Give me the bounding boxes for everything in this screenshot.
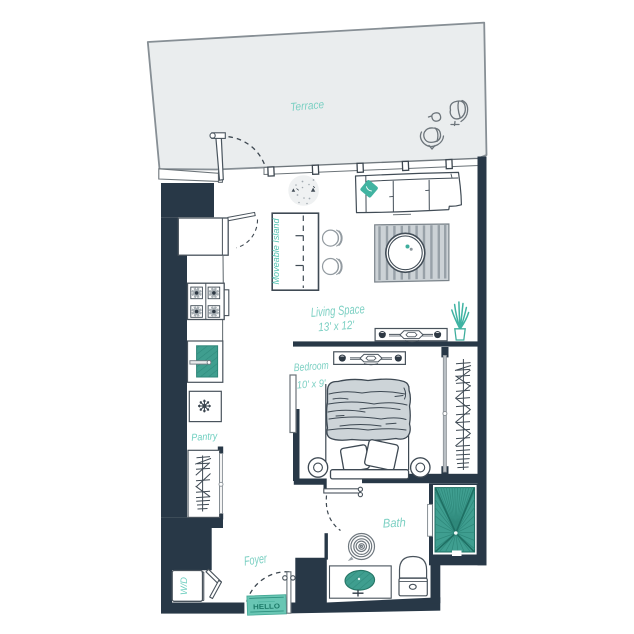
svg-text:10' x 9': 10' x 9' [296,377,327,391]
svg-text:W/D: W/D [179,577,190,595]
svg-text:HELLO: HELLO [253,603,281,611]
svg-text:Bath: Bath [382,515,406,530]
svg-text:Pantry: Pantry [191,431,219,444]
svg-text:Bedroom: Bedroom [293,360,329,374]
svg-text:Moveable Island: Moveable Island [271,218,281,285]
svg-text:13' x 12': 13' x 12' [318,318,355,335]
